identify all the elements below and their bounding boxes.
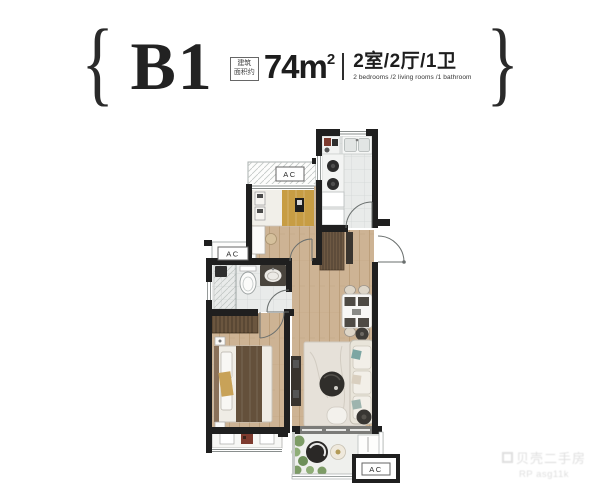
sofa-pillow-teal xyxy=(351,349,362,360)
watermark-line2: RP asg11k xyxy=(502,469,586,480)
pouf xyxy=(327,407,347,424)
watermark-logo-icon xyxy=(502,452,513,463)
bed2-laptop-screen xyxy=(297,200,302,205)
kitchen-appliance-red xyxy=(324,138,331,146)
side-table-top xyxy=(360,332,364,336)
nightstand-1-lamp xyxy=(219,340,222,343)
ac-label-left: AC xyxy=(226,250,239,259)
bay-tray-item xyxy=(243,436,246,439)
bedroom2-window xyxy=(252,184,314,190)
sliding-door xyxy=(300,426,372,434)
entry-hall xyxy=(320,230,353,270)
desk xyxy=(252,226,265,254)
balcony-cabinet xyxy=(358,435,380,456)
kitchen-left-window xyxy=(316,156,322,180)
watermark-text: 贝壳二手房 xyxy=(516,448,586,467)
dining-chair-3 xyxy=(345,328,356,337)
wall-acleft-pier xyxy=(204,240,212,246)
entry-console xyxy=(346,232,353,264)
vanity-faucet xyxy=(272,268,275,271)
placemat-1 xyxy=(345,297,356,306)
kitchen-window xyxy=(340,129,366,136)
bed2-pillow-1 xyxy=(255,192,265,205)
placemat-3 xyxy=(345,318,356,327)
wall-bay-right xyxy=(278,427,288,437)
balcony-left-rail xyxy=(292,432,295,474)
sink-faucet xyxy=(356,139,359,142)
wall-entry-stub xyxy=(376,219,390,226)
dining-centerpiece xyxy=(352,309,361,315)
wall-master-right xyxy=(284,313,290,433)
bed2-pillow-2-accent xyxy=(257,209,263,213)
stove-burner-1-center xyxy=(331,164,335,168)
coffee-table-dish xyxy=(334,386,338,390)
bay-cushion-2 xyxy=(260,433,274,444)
kitchen-appliance-dark xyxy=(332,139,338,146)
plant-3 xyxy=(298,456,308,466)
master-headboard xyxy=(214,346,219,422)
tv-console-drawer-1 xyxy=(293,360,299,368)
wall-master-bottom xyxy=(206,427,288,434)
dining-chair-2 xyxy=(359,286,370,295)
wall-bedroom2-bottom-right xyxy=(312,258,322,265)
wall-right-main xyxy=(372,262,378,430)
balcony-table-item xyxy=(336,450,341,455)
floor-plant-center xyxy=(362,415,367,420)
wall-bathroom-bottom xyxy=(206,309,258,316)
stove-burner-2-center xyxy=(331,182,335,186)
placemat-4 xyxy=(358,318,369,327)
plant-1 xyxy=(294,436,305,447)
kitchen-cabinet-1 xyxy=(322,192,344,207)
sink-basin-left xyxy=(345,139,357,152)
wardrobe xyxy=(212,314,258,333)
wall-kitchen-right xyxy=(372,129,378,228)
kitchen-pot xyxy=(325,148,330,153)
placemat-2 xyxy=(358,297,369,306)
bay-window-glass xyxy=(212,448,282,453)
desk-chair xyxy=(266,234,277,245)
master-blanket xyxy=(236,346,262,422)
shoe-cabinet-slats xyxy=(323,230,341,270)
washing-machine xyxy=(215,266,227,277)
wall-master-left xyxy=(206,313,212,434)
sofa-pillow-cream xyxy=(351,374,361,384)
tv-console-drawer-2 xyxy=(293,390,299,398)
toilet-tank xyxy=(240,266,256,271)
plant-5 xyxy=(306,466,314,474)
ac-label-top: AC xyxy=(283,170,296,179)
entry-door xyxy=(378,236,405,263)
bed2-pillow-1-accent xyxy=(257,194,263,198)
wall-bedroom2-bottom xyxy=(246,258,292,265)
watermark-line1: 贝壳二手房 xyxy=(502,448,586,467)
kitchen-cabinet-2 xyxy=(322,209,344,225)
bay-cushion-1 xyxy=(220,433,234,444)
ac-label-bottom: AC xyxy=(369,465,382,474)
bed2-pillow-2 xyxy=(255,207,265,220)
sink-basin-right xyxy=(359,139,370,152)
bathroom-window xyxy=(206,282,212,300)
wall-bathroom-right xyxy=(286,258,292,292)
dining-chair-1 xyxy=(345,286,356,295)
bay-tray xyxy=(241,434,253,444)
floor-plan: AC AC AC xyxy=(0,0,600,500)
wall-bay-left xyxy=(206,427,212,453)
watermark: 贝壳二手房 RP asg11k xyxy=(502,448,586,480)
sofa-pillow-sage xyxy=(351,399,361,409)
